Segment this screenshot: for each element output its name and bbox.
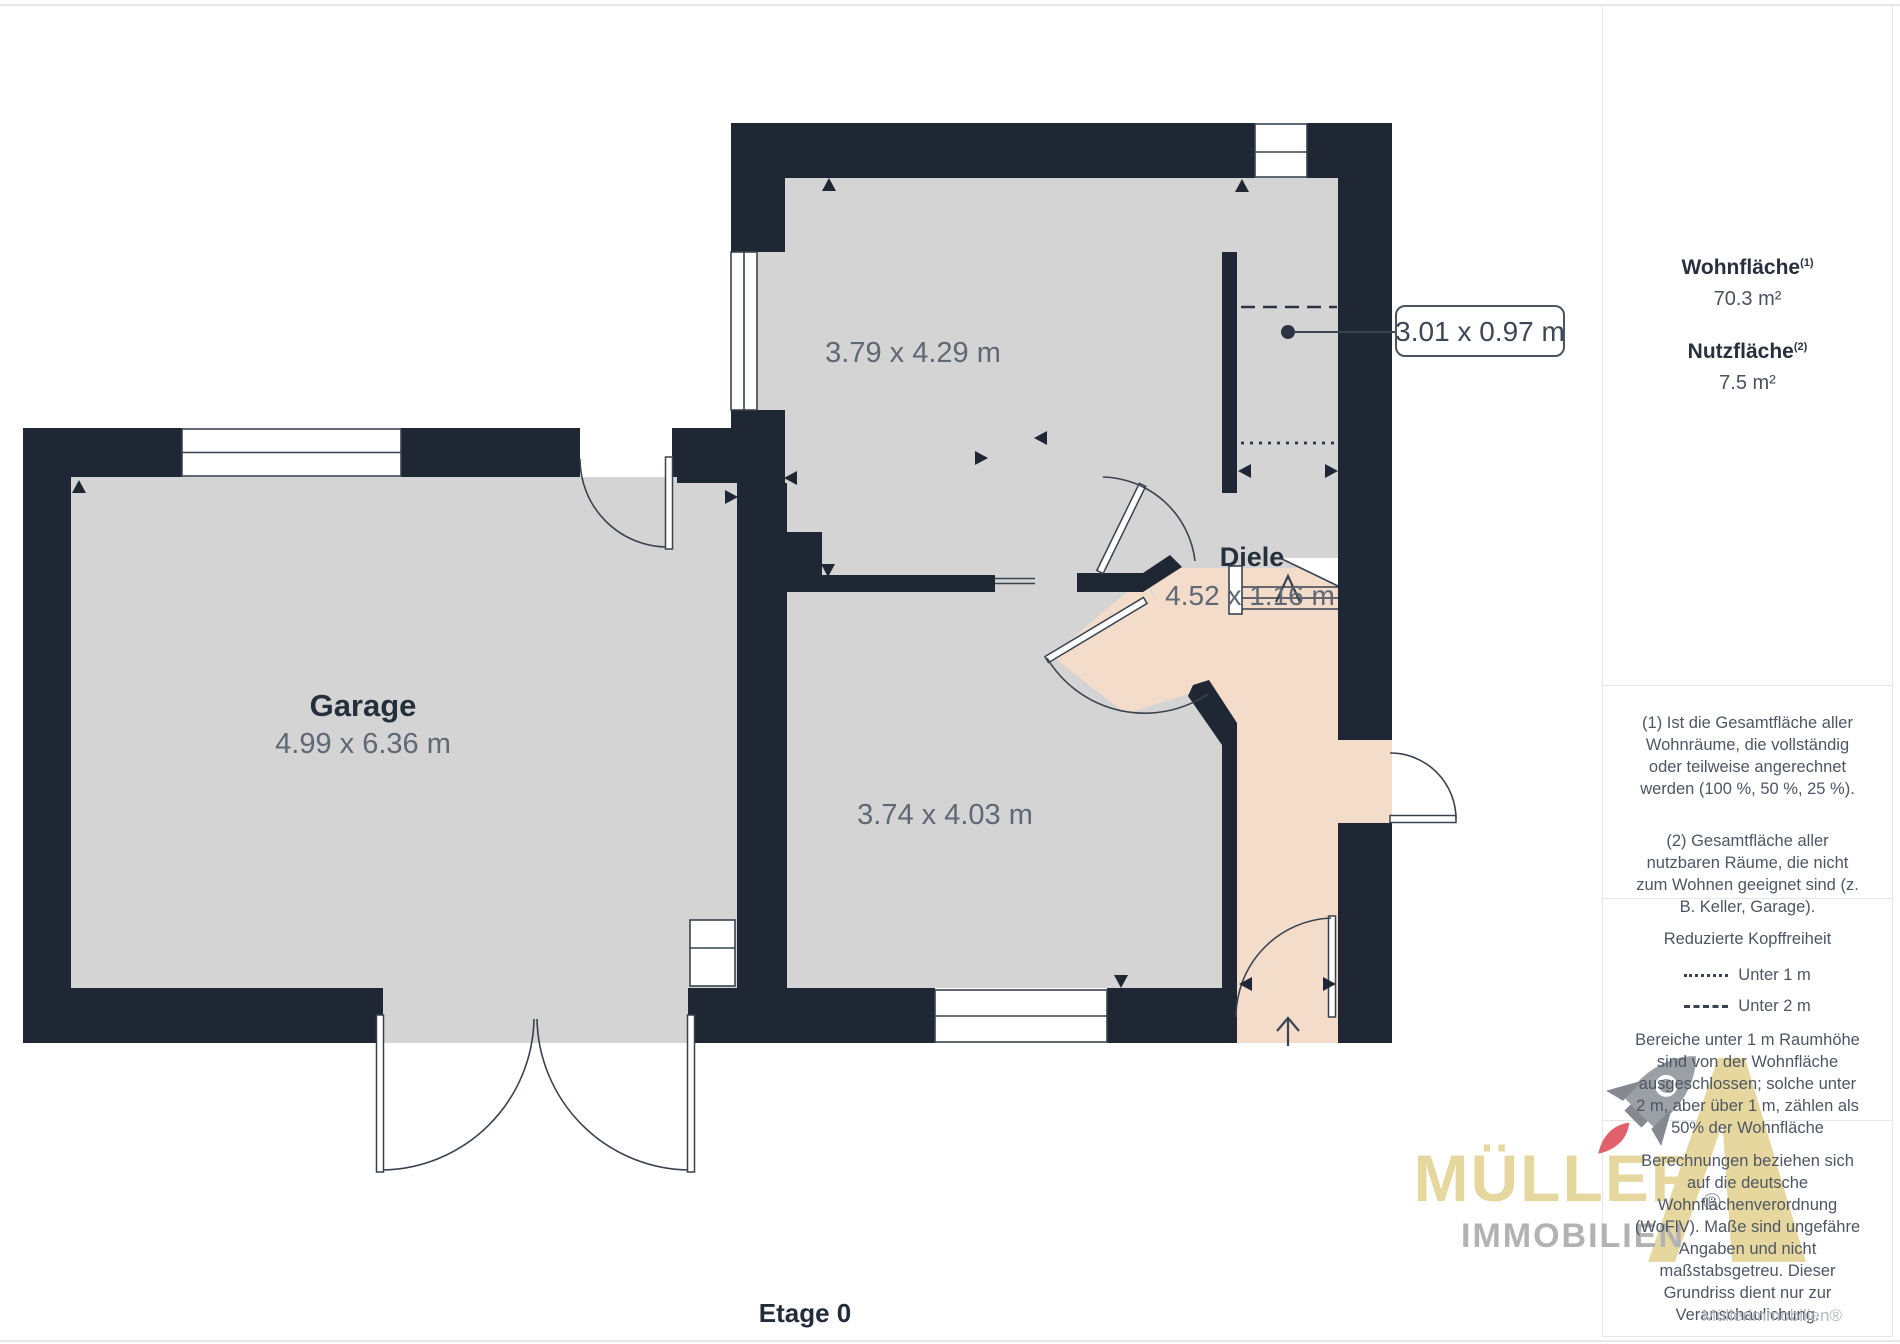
credit-line: Müllerimmobilien®: [1602, 1306, 1842, 1326]
dotted-line-icon: [1684, 974, 1728, 977]
wohnflaeche-label-text: Wohnfläche: [1681, 256, 1800, 279]
garage-fixture: [690, 920, 735, 986]
entrance-door-leaf: [1329, 916, 1336, 1017]
legend-note: Bereiche unter 1 m Raumhöhe sind von der…: [1602, 1029, 1893, 1139]
nutzflaeche-sup: (2): [1794, 341, 1807, 353]
garage-gate-right-leaf: [688, 1015, 695, 1172]
side-exit-door-swing-icon: [1390, 753, 1456, 819]
note-1: (1) Ist die Gesamtfläche aller Wohnräume…: [1602, 712, 1893, 800]
legend-row-under-2m: Unter 2 m: [1602, 995, 1893, 1017]
stair-window: [1255, 124, 1307, 177]
sidebar-legend: Reduzierte Kopffreiheit Unter 1 m Unter …: [1602, 928, 1893, 1169]
legend-label-under-2m: Unter 2 m: [1738, 995, 1810, 1017]
window-floor-strip: [757, 252, 785, 410]
callout-dimension-label: 3.01 x 0.97 m: [1395, 316, 1565, 347]
garage-floor: [71, 477, 737, 1043]
open-doorway: [995, 575, 1035, 592]
floor-level-label: Etage 0: [759, 1298, 852, 1328]
side-exit-door-leaf: [1390, 816, 1456, 823]
garage-dims: 4.99 x 6.36 m: [275, 728, 451, 760]
sidebar-areas: Wohnfläche(1) 70.3 m² Nutzfläche(2) 7.5 …: [1602, 252, 1893, 420]
garage-side-door-leaf: [666, 457, 673, 549]
nutzflaeche-label: Nutzfläche(2): [1602, 336, 1893, 363]
dashed-line-icon: [1684, 1005, 1728, 1008]
wohnflaeche-value: 70.3 m²: [1602, 288, 1893, 310]
diele-name: Diele: [1220, 542, 1285, 572]
note-2: (2) Gesamtfläche aller nutzbaren Räume, …: [1602, 830, 1893, 918]
garage-gate-left-leaf: [377, 1015, 384, 1172]
wohnflaeche-metric: Wohnfläche(1) 70.3 m²: [1602, 252, 1893, 310]
legend-row-under-1m: Unter 1 m: [1602, 964, 1893, 986]
nutzflaeche-value: 7.5 m²: [1602, 372, 1893, 394]
room-top-dims: 3.79 x 4.29 m: [825, 337, 1001, 369]
nutzflaeche-label-text: Nutzfläche: [1688, 340, 1794, 363]
legend-title: Reduzierte Kopffreiheit: [1602, 928, 1893, 950]
sidebar-notes: (1) Ist die Gesamtfläche aller Wohnräume…: [1602, 712, 1893, 948]
nutzflaeche-metric: Nutzfläche(2) 7.5 m²: [1602, 336, 1893, 394]
disclaimer-text: Berechnungen beziehen sich auf die deuts…: [1602, 1150, 1893, 1326]
floorplan-page: 3.01 x 0.97 m 3.79 x 4.29 m Garage 4.99 …: [0, 0, 1900, 1344]
wohnflaeche-sup: (1): [1800, 257, 1813, 269]
diele-dims: 4.52 x 1.16 m: [1165, 580, 1335, 611]
garage-name: Garage: [310, 688, 417, 723]
room-mid-dims: 3.74 x 4.03 m: [857, 799, 1033, 831]
wohnflaeche-label: Wohnfläche(1): [1602, 252, 1893, 279]
legend-label-under-1m: Unter 1 m: [1738, 964, 1810, 986]
